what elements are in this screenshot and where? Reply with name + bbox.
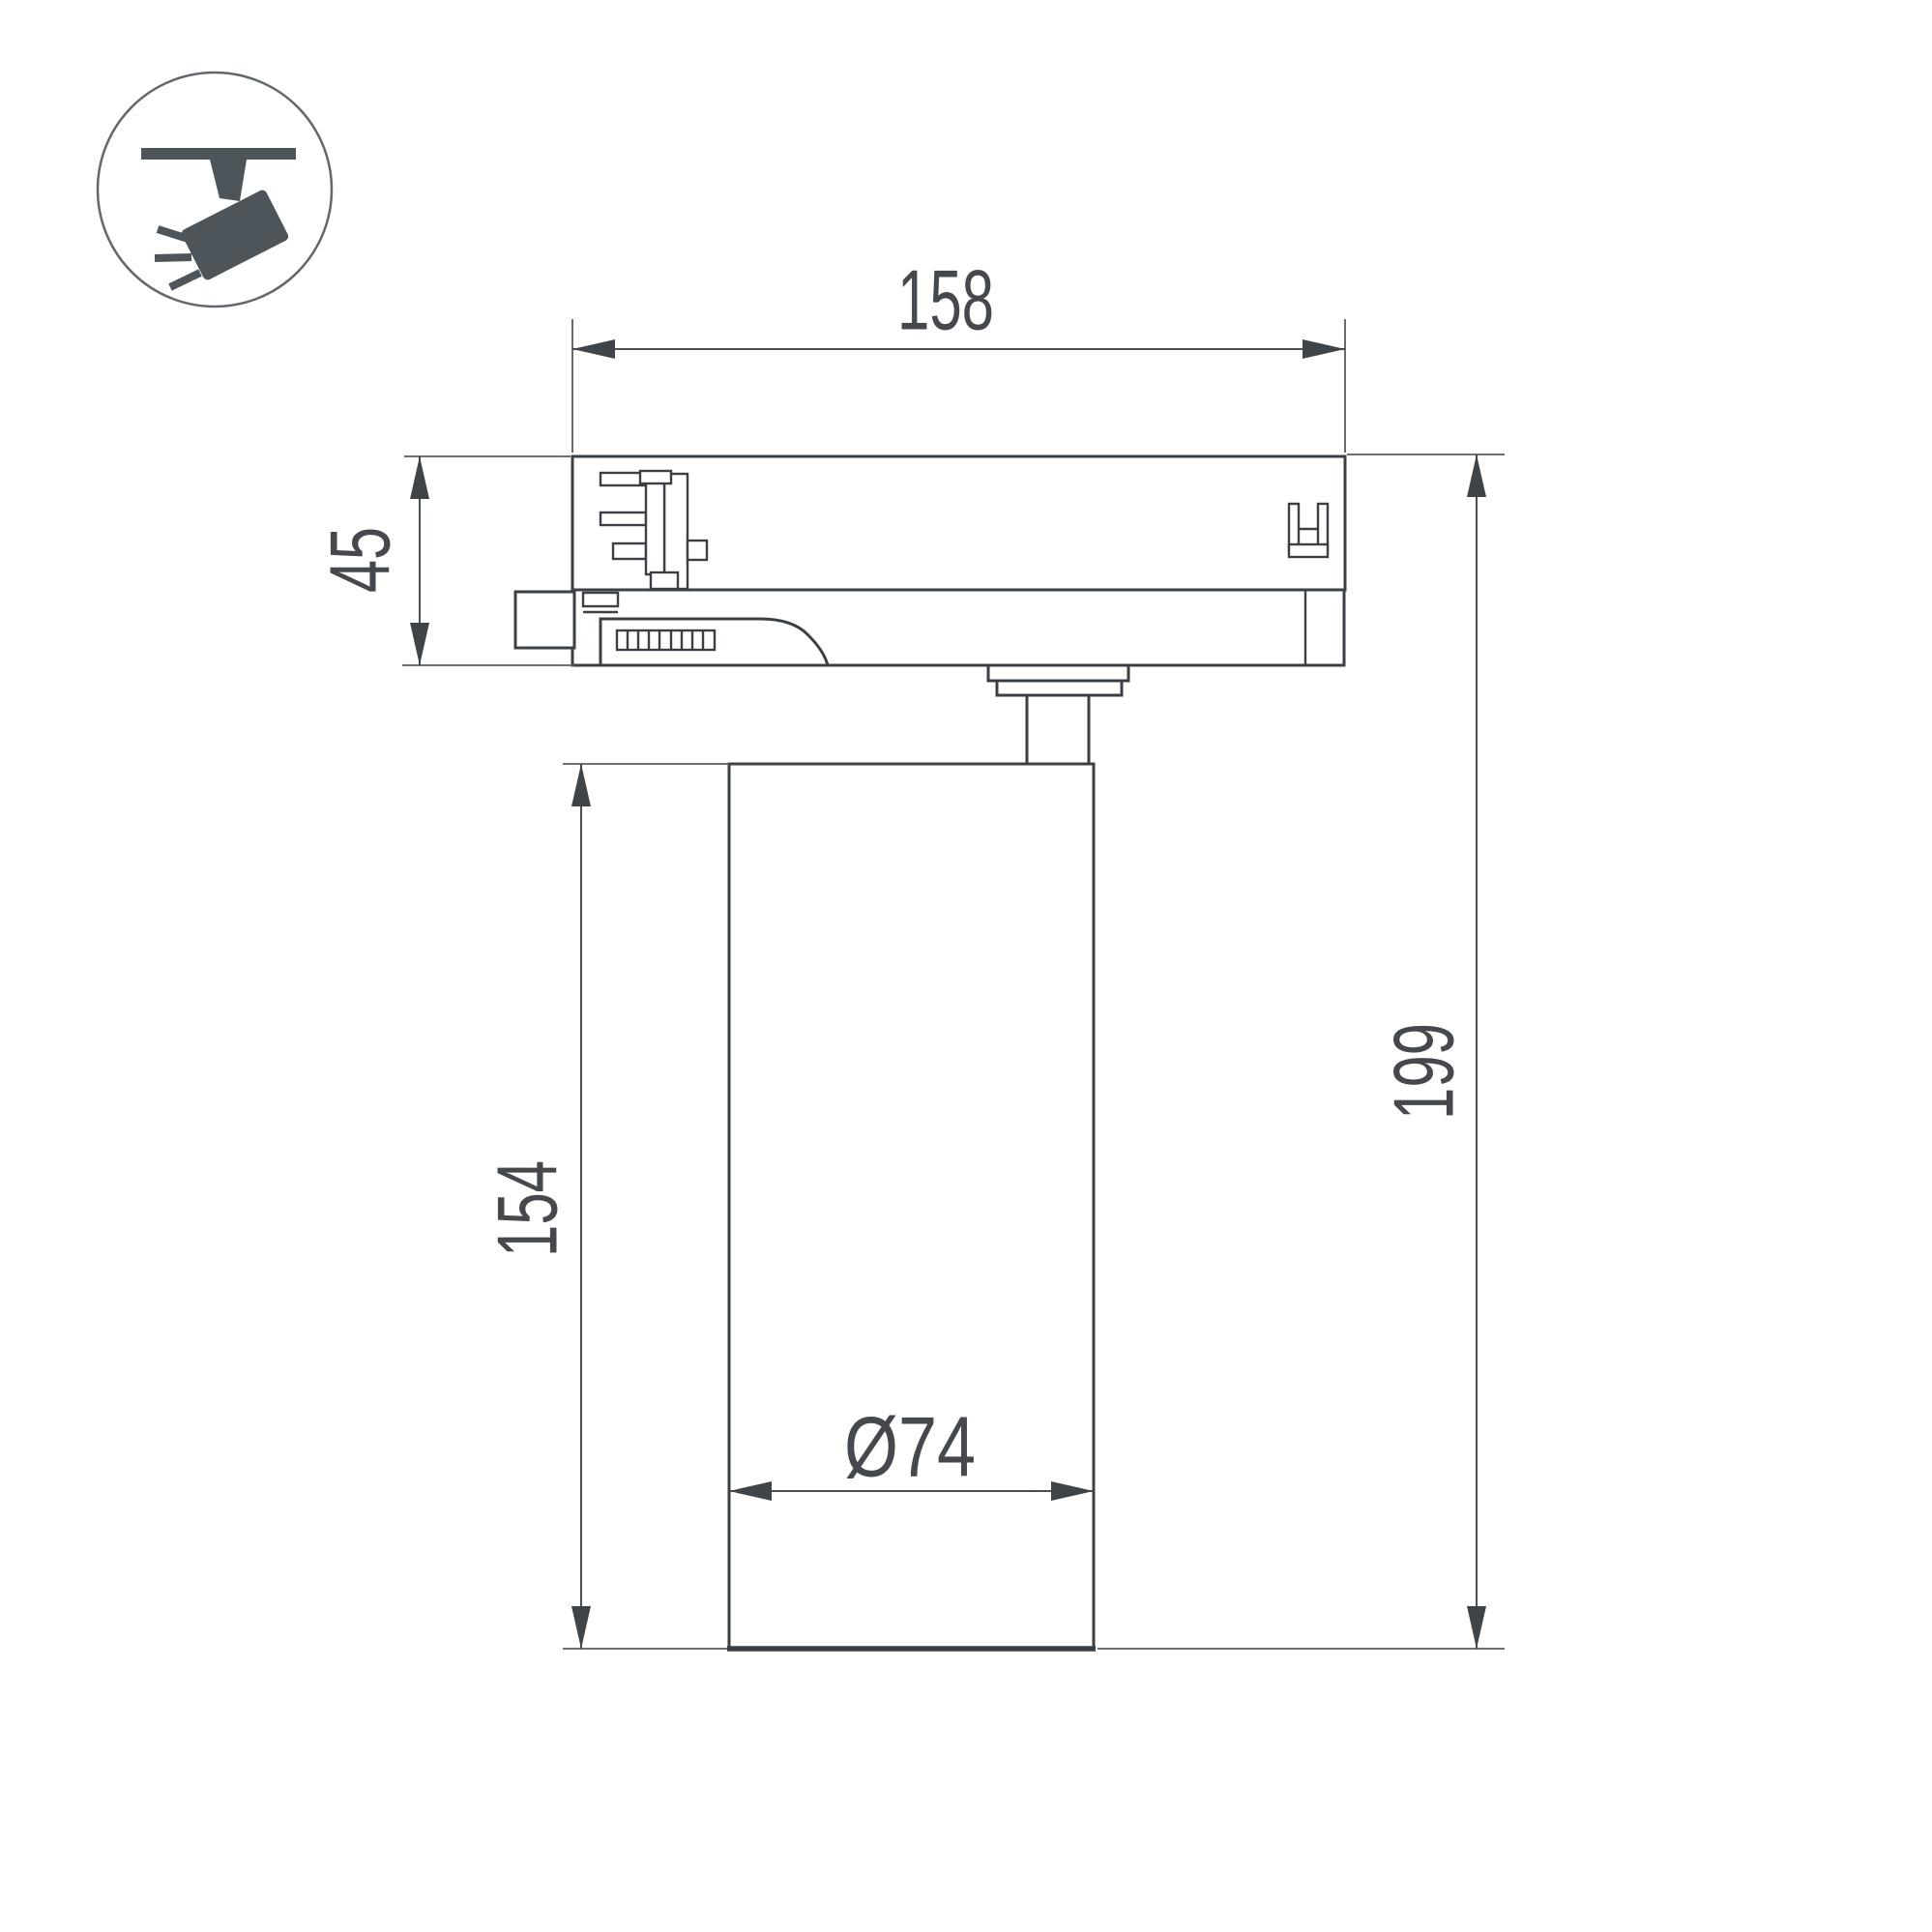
dim-label-adapter-height: 45 — [312, 527, 408, 593]
swivel-stem — [1027, 695, 1089, 764]
track-adapter — [515, 456, 1345, 665]
ribbed-slider — [617, 630, 715, 650]
arrow-left-icon — [572, 339, 615, 359]
contact-prong-mid — [600, 512, 646, 525]
lamp-body — [727, 764, 1096, 1649]
arrow-down-icon — [571, 1606, 591, 1649]
arrow-down-icon — [1467, 1606, 1486, 1649]
screw-foot — [651, 572, 678, 589]
dim-label-body-diameter: Ø74 — [844, 1399, 976, 1495]
side-lever-block — [515, 592, 574, 648]
dimension-drawing: 158 45 154 199 Ø74 — [0, 0, 1932, 1932]
swivel-joint — [988, 665, 1128, 764]
swivel-flange-inner — [997, 681, 1122, 695]
arrow-up-icon — [410, 456, 429, 499]
dim-label-total-height: 199 — [1376, 1023, 1472, 1120]
arrow-up-icon — [1467, 454, 1486, 497]
dim-label-top-width: 158 — [897, 252, 994, 348]
dimension-top-width: 158 — [572, 252, 1345, 454]
cylinder-body — [729, 764, 1094, 1649]
arrow-right-icon — [1303, 339, 1345, 359]
arrow-down-icon — [410, 623, 429, 665]
arrow-up-icon — [571, 764, 591, 806]
swivel-flange-outer — [988, 665, 1128, 681]
screw-shaft — [646, 483, 664, 574]
contact-wing — [688, 541, 707, 560]
dimension-body-height: 154 — [480, 764, 730, 1649]
technical-drawing-page: 158 45 154 199 Ø74 — [0, 0, 1932, 1932]
lever-tab — [583, 593, 618, 606]
screw-head — [640, 471, 671, 483]
track-spotlight-icon — [98, 73, 332, 307]
contact-prong-low — [613, 543, 646, 559]
track-rail-shape — [141, 148, 296, 160]
dim-label-body-height: 154 — [480, 1160, 575, 1257]
